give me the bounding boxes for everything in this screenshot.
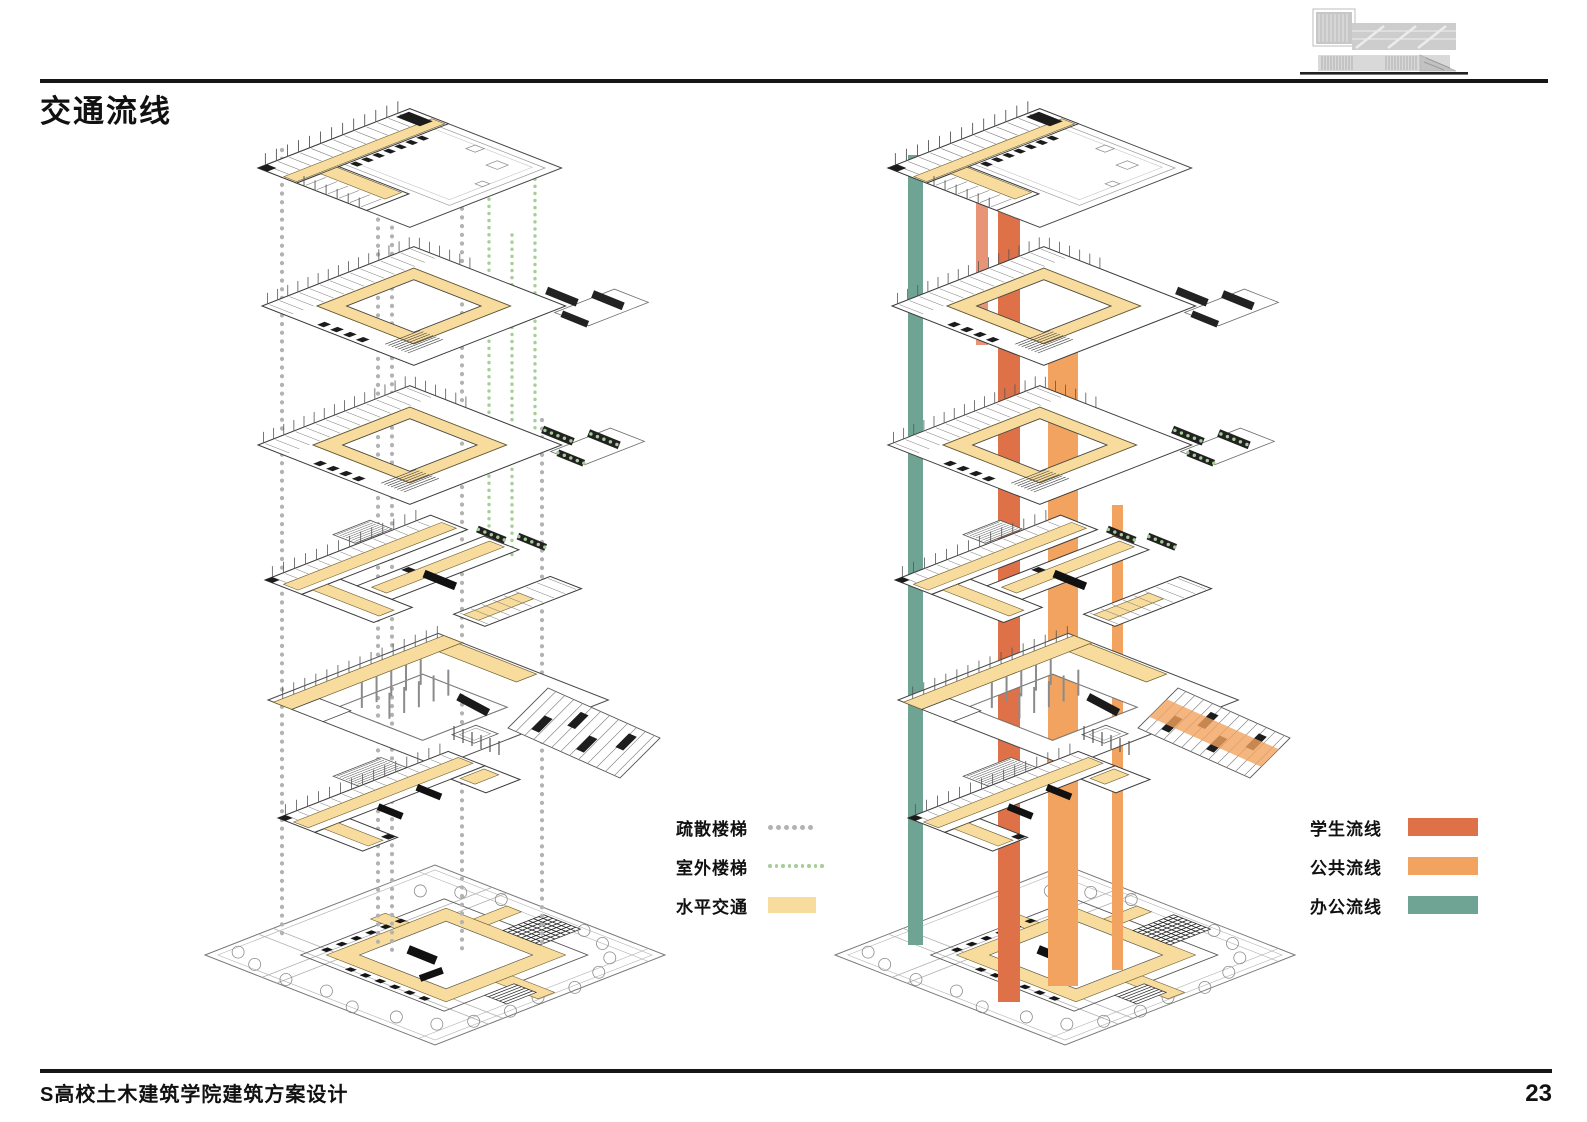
footer-project-title: S高校土木建筑学院建筑方案设计 bbox=[40, 1078, 348, 1107]
legend-label: 水平交通 bbox=[676, 893, 752, 918]
legend-label: 疏散楼梯 bbox=[676, 815, 752, 840]
legend-label: 学生流线 bbox=[1310, 815, 1386, 840]
flow-circulation-legend: 学生流线公共流线办公流线 bbox=[1310, 816, 1478, 933]
legend-item: 公共流线 bbox=[1310, 855, 1478, 877]
presentation-page: 交通流线 疏散楼梯室外楼梯水平交通 学生流线公共流线办公流线 S高校土木建筑学院… bbox=[0, 0, 1587, 1122]
red-swatch bbox=[1408, 818, 1478, 836]
roof-level-plan bbox=[888, 101, 1192, 227]
circulation-diagrams-canvas bbox=[0, 0, 1587, 1122]
legend-item: 水平交通 bbox=[676, 894, 827, 916]
legend-item: 疏散楼梯 bbox=[676, 816, 827, 838]
legend-label: 办公流线 bbox=[1310, 893, 1386, 918]
legend-label: 公共流线 bbox=[1310, 854, 1386, 879]
gray-dotted-line-symbol bbox=[768, 825, 816, 830]
teal-swatch bbox=[1408, 896, 1478, 914]
green-dotted-line-symbol bbox=[768, 864, 827, 868]
legend-item: 学生流线 bbox=[1310, 816, 1478, 838]
second-floor-plan bbox=[898, 626, 1290, 778]
ground-site-plan bbox=[205, 865, 665, 1045]
fourth-floor-plan bbox=[258, 376, 644, 504]
fifth-floor-plan bbox=[892, 237, 1278, 365]
fourth-floor-plan bbox=[888, 376, 1274, 504]
stair-circulation-legend: 疏散楼梯室外楼梯水平交通 bbox=[676, 816, 827, 933]
orange-swatch bbox=[1408, 857, 1478, 875]
office-flow-band bbox=[908, 155, 923, 945]
roof-level-plan bbox=[258, 101, 562, 227]
second-floor-plan bbox=[268, 626, 660, 778]
exploded-axon-circulation-right bbox=[835, 101, 1295, 1045]
fifth-floor-plan bbox=[262, 237, 648, 365]
legend-item: 室外楼梯 bbox=[676, 855, 827, 877]
footer-rule bbox=[40, 1069, 1552, 1073]
legend-label: 室外楼梯 bbox=[676, 854, 752, 879]
legend-item: 办公流线 bbox=[1310, 894, 1478, 916]
third-floor-plan bbox=[265, 510, 582, 626]
exploded-axon-circulation-left bbox=[205, 101, 665, 1045]
page-number: 23 bbox=[1525, 1080, 1552, 1108]
yellow-swatch bbox=[768, 897, 816, 913]
first-floor-plan bbox=[278, 744, 520, 851]
